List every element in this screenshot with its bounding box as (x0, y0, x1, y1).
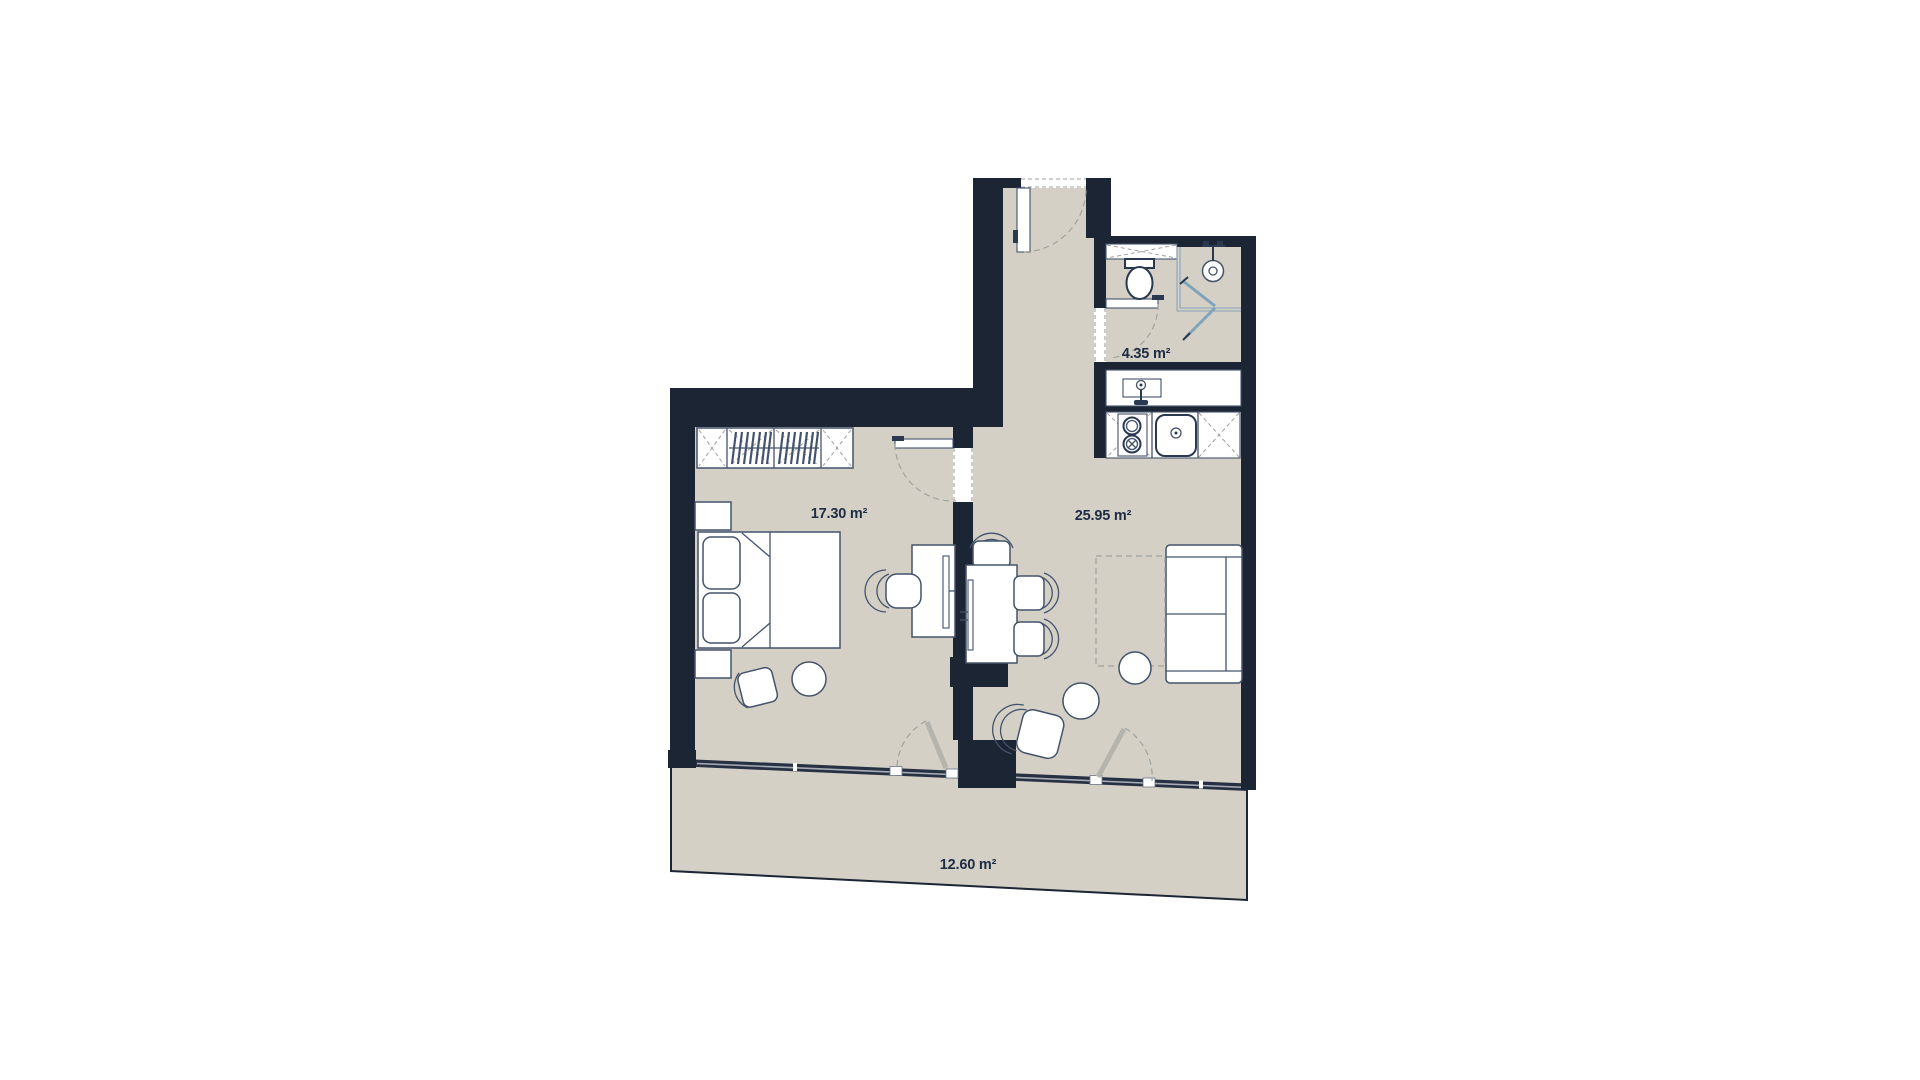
balcony-door-jamb (890, 767, 902, 776)
bench (968, 580, 973, 650)
bathroom-area-label: 4.35 m² (1122, 346, 1171, 362)
toilet-icon (1125, 259, 1154, 299)
left-wall (670, 388, 695, 768)
bedroom-door-opening (953, 448, 973, 502)
sink-icon (1156, 415, 1196, 456)
sofa (1166, 545, 1242, 683)
partition-wall-top (953, 427, 973, 448)
pillow (703, 593, 740, 643)
monitor (943, 556, 949, 628)
window-mullion (793, 763, 797, 771)
nightstand (695, 502, 731, 530)
entrance-door-handle (1013, 230, 1018, 243)
bathroom-left-wall (1094, 247, 1106, 308)
bedroom-door-handle (892, 436, 904, 441)
bathroom-door-opening (1094, 308, 1106, 362)
entrance-door-leaf (1017, 188, 1030, 252)
right-wall (1241, 236, 1256, 790)
nightstand (695, 650, 731, 678)
living-area-label: 25.95 m² (1075, 508, 1132, 524)
corridor-left-wall (973, 178, 1003, 427)
bedroom-top-wall (670, 388, 1003, 427)
entrance-wall-left (973, 178, 1021, 188)
niche-bottom-wall (1094, 406, 1241, 412)
balcony-door-jamb (1143, 778, 1155, 787)
entrance-wall-right (1086, 178, 1111, 238)
utility-niche (1106, 370, 1241, 406)
dining-table (966, 565, 1017, 663)
stove-icon (1118, 414, 1147, 456)
kitchen-counter (1106, 412, 1240, 458)
bathroom-door-handle (1152, 295, 1164, 300)
window-mullion (1199, 781, 1203, 789)
bedroom-area-label: 17.30 m² (811, 506, 868, 522)
balcony-door-jamb (946, 769, 958, 778)
balcony-area-label: 12.60 m² (940, 857, 997, 873)
side-table (1063, 683, 1099, 719)
side-table (1119, 652, 1151, 684)
mid-window-pier (958, 740, 1016, 788)
bathroom-door-leaf (1106, 299, 1158, 308)
floor-plan: 17.30 m² 25.95 m² 4.35 m² 12.60 m² (0, 0, 1920, 1080)
pillow (703, 537, 740, 589)
bedroom-round-rug (792, 662, 826, 696)
shower-drain (1203, 261, 1224, 282)
left-window-pier (668, 750, 696, 768)
wardrobe (697, 428, 853, 468)
bed (698, 532, 840, 648)
